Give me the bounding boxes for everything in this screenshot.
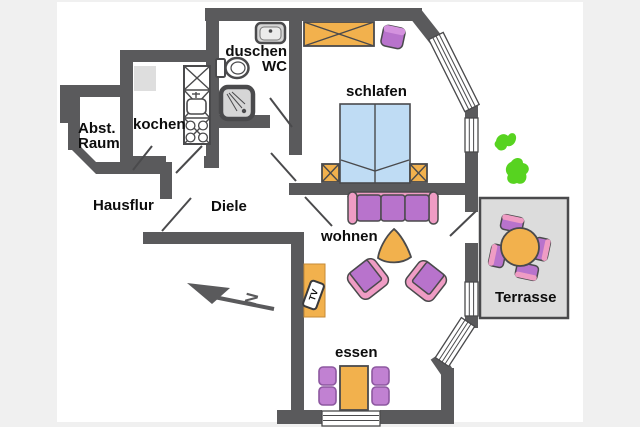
living-east-window [465, 282, 478, 316]
label-hallway-building: Hausflur [93, 198, 154, 213]
dining-chair [319, 387, 336, 405]
wall-segment [380, 410, 454, 424]
dining-table [340, 366, 368, 410]
wall-segment [465, 243, 478, 282]
burner [199, 133, 208, 142]
dining-chair [372, 387, 389, 405]
wall-segment [277, 410, 322, 424]
terrace-table [501, 228, 539, 266]
wall-segment [205, 8, 422, 21]
wall-segment [160, 174, 172, 199]
sofa [348, 192, 438, 224]
wall-segment [120, 50, 219, 62]
wall-segment [120, 50, 133, 168]
dining-south-window [322, 411, 380, 426]
wall-segment [60, 85, 133, 97]
label-storage-room: Abst. Raum [78, 121, 120, 151]
wall-segment [465, 152, 478, 212]
shower [221, 87, 253, 119]
burner [186, 133, 195, 142]
stool [380, 24, 406, 49]
wall-segment [289, 8, 302, 155]
burner [199, 121, 208, 130]
label-living-room: wohnen [321, 229, 378, 244]
label-kitchen: kochen [133, 117, 186, 132]
dining-chair [319, 367, 336, 385]
label-terrace: Terrasse [495, 290, 556, 305]
label-hall: Diele [211, 199, 247, 214]
burner [186, 121, 195, 130]
label-dining-area: essen [335, 345, 378, 360]
bedroom-east-window [465, 118, 478, 152]
label-bedroom: schlafen [346, 84, 407, 99]
floor-plan: N Abst. Raum kochen duschen WC schlafen … [0, 0, 640, 427]
wall-segment [441, 368, 454, 414]
refrigerator [134, 66, 156, 91]
sink [187, 99, 206, 114]
dining-chair [372, 367, 389, 385]
dining-furniture [319, 366, 389, 410]
wall-segment [204, 156, 219, 168]
label-bathroom: duschen WC [224, 44, 287, 74]
wall-segment [291, 232, 304, 412]
wall-segment [143, 232, 304, 244]
